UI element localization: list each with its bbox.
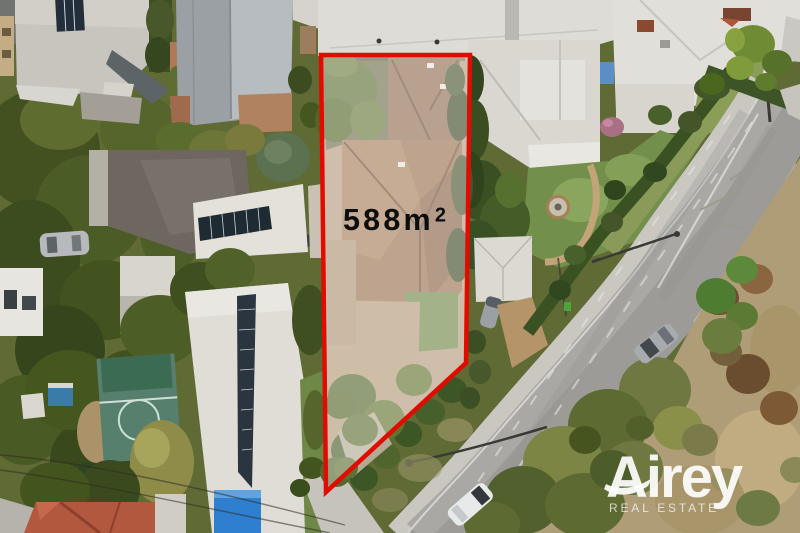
svg-text:588m2: 588m2 (343, 203, 449, 237)
svg-text:REAL ESTATE: REAL ESTATE (609, 501, 719, 515)
